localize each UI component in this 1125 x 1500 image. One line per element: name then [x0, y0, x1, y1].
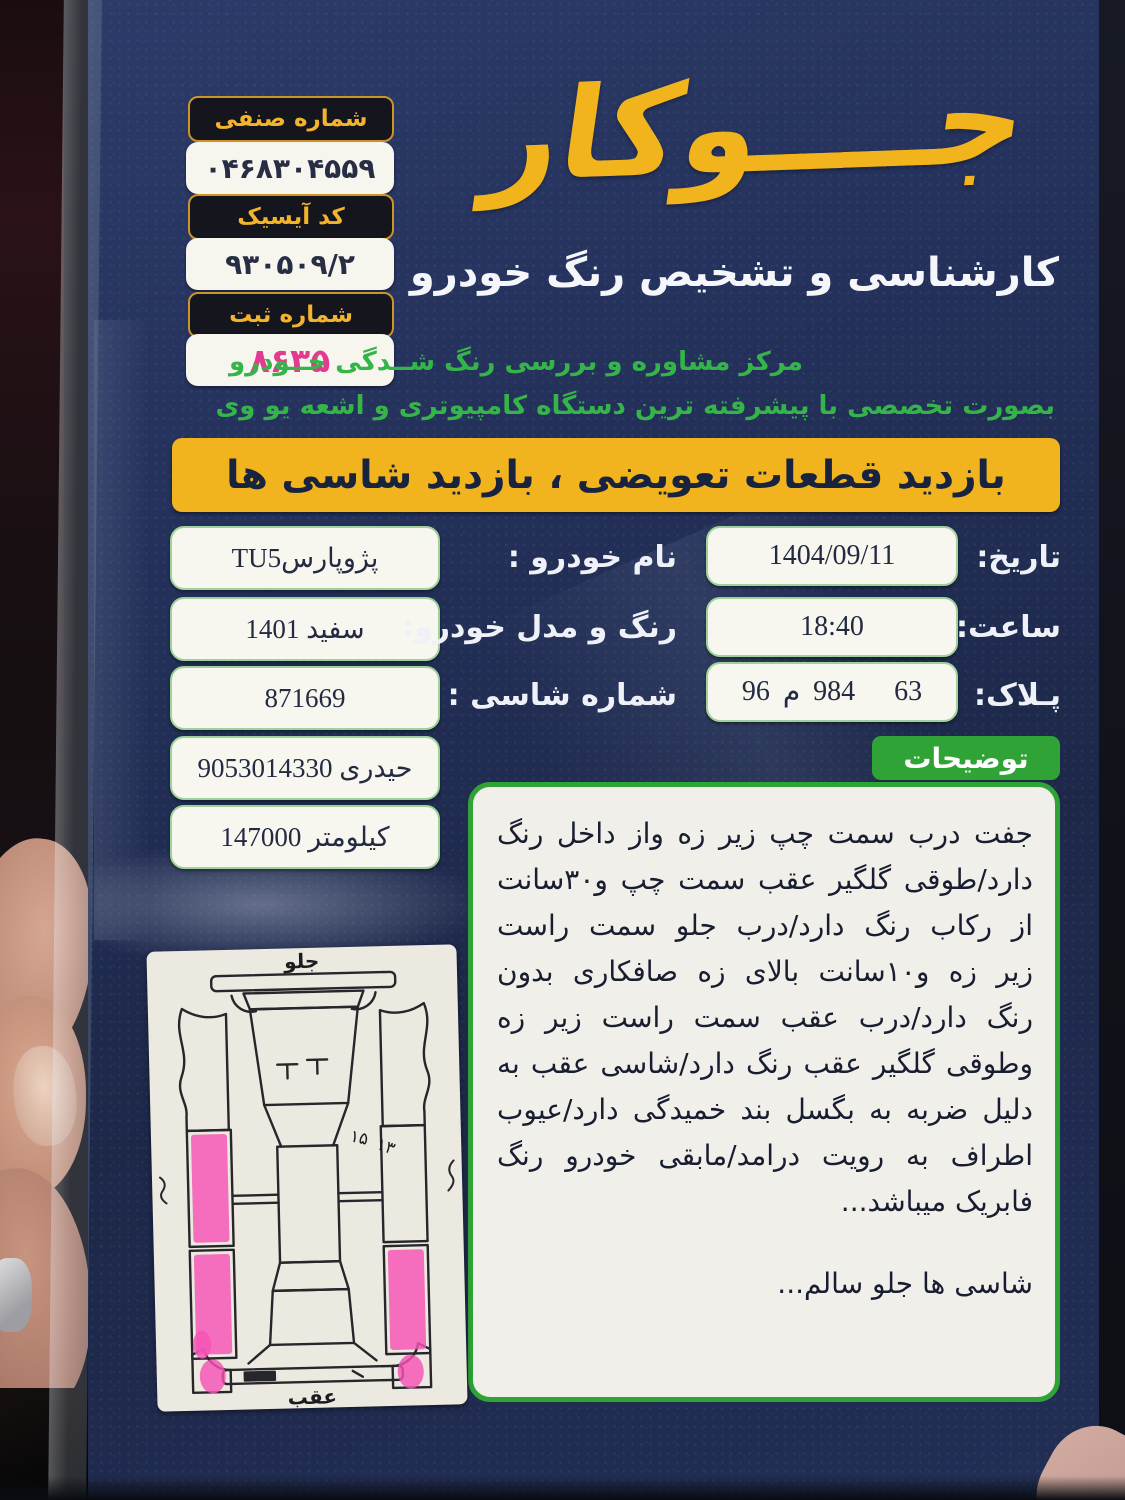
diagram-mark-2: ۱۳	[374, 1134, 398, 1159]
color-model-label: رنگ و مدل خودرو:	[402, 610, 677, 645]
notes-badge: توضیحات	[872, 736, 1060, 780]
diagram-front-label: جلو	[283, 949, 320, 974]
date-label: تاریخ:	[976, 540, 1061, 575]
chassis-number-field: 871669	[170, 666, 440, 730]
brand-subtitle-2: بصورت تخصصی با پیشرفته ترین دستگاه کامپی…	[215, 391, 1055, 421]
ring-glint	[0, 1258, 32, 1332]
diagram-mark-1: ۱۵	[348, 1126, 370, 1150]
car-name-label: نام خودرو :	[508, 540, 677, 575]
bottom-edge-shadow	[0, 1476, 1125, 1500]
registry-number-label: شماره ثبت	[188, 292, 394, 338]
note-line: جفت درب سمت چپ زیر زه واز داخل رنگ	[497, 811, 1033, 857]
services-banner-text: بازدید قطعات تعویضی ، بازدید شاسی ها	[226, 453, 1006, 498]
brand-subtitle-1: مرکز مشاوره و بررسی رنگ شــدگی خــودرو	[229, 347, 803, 377]
services-banner: بازدید قطعات تعویضی ، بازدید شاسی ها	[172, 438, 1060, 512]
plate-label: پـلاک:	[974, 678, 1061, 713]
background-right-strip	[1099, 0, 1125, 1500]
plate-part-left: 96	[742, 676, 770, 708]
isic-code-label: کد آیسیک	[188, 194, 394, 240]
plate-letter: م	[783, 675, 800, 709]
note-line: دارد/طوقی گلگیر عقب سمت چپ و۳۰سانت	[497, 857, 1033, 903]
guild-number-label: شماره صنفی	[188, 96, 394, 142]
plate-part-mid: 984	[813, 676, 855, 708]
note-line: فابریک میباشد...	[497, 1179, 1033, 1225]
notes-box: جفت درب سمت چپ زیر زه واز داخل رنگ دارد/…	[468, 782, 1060, 1402]
note-line: اطراف به رویت درامد/مابقی خودرو رنگ	[497, 1133, 1033, 1179]
guild-number-value: ۰۴۶۸۳۰۴۵۵۹	[186, 142, 394, 194]
date-field: 1404/09/11	[706, 526, 958, 586]
plate-field: 96 م 984 63	[706, 662, 958, 722]
time-field: 18:40	[706, 597, 958, 657]
plate-region-code: 63	[894, 676, 922, 708]
note-line: از رکاب رنگ دارد/درب جلو سمت راست	[497, 903, 1033, 949]
brand-tagline: کارشناسی و تشخیص رنگ خودرو	[549, 250, 1059, 296]
photo-of-inspection-card: شماره صنفی ۰۴۶۸۳۰۴۵۵۹ کد آیسیک ۹۳۰۵۰۹/۲ …	[0, 0, 1125, 1500]
jokar-logo: جــــوکار	[449, 4, 1064, 250]
note-footer: شاسی ها جلو سالم...	[497, 1267, 1033, 1300]
note-line: زیر زه و۱۰سانت بالای زه صافکاری بدون	[497, 949, 1033, 995]
note-line: وطوقی گلگیر عقب رنگ دارد/شاسی عقب به	[497, 1041, 1033, 1087]
isic-code-value: ۹۳۰۵۰۹/۲	[186, 238, 394, 290]
car-damage-diagram: جلو عقب ۱۵ ۱۳	[146, 944, 467, 1411]
diagram-rear-label: عقب	[287, 1384, 337, 1409]
time-label: ساعت:	[956, 610, 1061, 645]
color-model-field: سفید 1401	[170, 597, 440, 661]
note-line: رنگ دارد/درب عقب سمت راست زیر زه	[497, 995, 1033, 1041]
car-diagram-svg: جلو عقب ۱۵ ۱۳	[146, 944, 467, 1411]
car-name-field: پژوپارسTU5	[170, 526, 440, 590]
card-edge-light	[94, 320, 149, 940]
note-line: دلیل ضربه به بگسل بند خمیدگی دارد/عیوب	[497, 1087, 1033, 1133]
kilometer-field: کیلومتر 147000	[170, 805, 440, 869]
owner-phone-field: حیدری 9053014330	[170, 736, 440, 800]
chassis-number-label: شماره شاسی :	[448, 678, 677, 713]
